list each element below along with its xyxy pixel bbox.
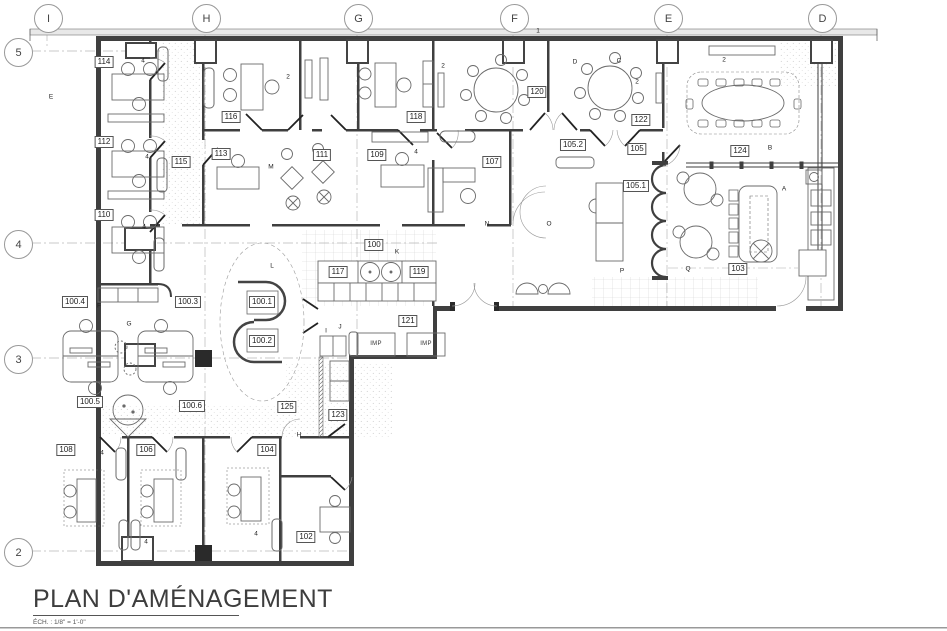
- grid-column-I: I: [34, 4, 63, 33]
- room-tag-107: 107: [482, 156, 501, 168]
- room-tag-100: 100: [364, 239, 383, 251]
- keynote-1: 1: [536, 28, 540, 35]
- grid-column-E: E: [654, 4, 683, 33]
- room-tag-105-2: 105.2: [560, 139, 586, 151]
- grid-row-5: 5: [4, 38, 33, 67]
- keynote-p: P: [620, 268, 624, 275]
- scalloped-wall: [652, 161, 668, 280]
- room-tag-112: 112: [95, 136, 114, 148]
- room-tag-100-2: 100.2: [249, 335, 275, 347]
- printer-label: IMP: [420, 341, 432, 347]
- room-tag-100-4: 100.4: [62, 296, 88, 308]
- room-tag-104: 104: [257, 444, 276, 456]
- room-tag-114: 114: [95, 56, 114, 68]
- grid-column-G: G: [344, 4, 373, 33]
- printer-label: IMP: [370, 341, 382, 347]
- keynote-l: L: [270, 263, 274, 270]
- keynote-j: J: [338, 324, 341, 331]
- keynote-2: 2: [635, 79, 639, 86]
- room-tag-100-6: 100.6: [179, 400, 205, 412]
- room-tag-109: 109: [367, 149, 386, 161]
- title-underline: [33, 615, 239, 616]
- room-tag-125: 125: [277, 401, 296, 413]
- room-tag-119: 119: [410, 266, 429, 278]
- floor-textures: [100, 40, 836, 437]
- keynote-c: C: [617, 58, 622, 65]
- keynote-n: N: [485, 221, 490, 228]
- room-tag-100-5: 100.5: [77, 396, 103, 408]
- room-tag-116: 116: [222, 111, 241, 123]
- keynote-4: 4: [100, 450, 104, 457]
- keynote-f: F: [97, 303, 101, 310]
- keynote-i: I: [325, 328, 327, 335]
- grid-column-H: H: [192, 4, 221, 33]
- grid-row-3: 3: [4, 345, 33, 374]
- drawing-title: PLAN D'AMÉNAGEMENT: [33, 586, 333, 612]
- room-tag-105: 105: [627, 143, 646, 155]
- floor-plan-sheet: I H G F E D 5 4 3 2 114 112 110 115 116 …: [0, 0, 947, 631]
- grid-column-D: D: [808, 4, 837, 33]
- title-block: PLAN D'AMÉNAGEMENT ÉCH. : 1/8" = 1'-0": [33, 586, 333, 626]
- keynote-e: E: [49, 94, 53, 101]
- keynote-2: 2: [722, 57, 726, 64]
- keynote-4: 4: [142, 224, 146, 231]
- floor-plan-drawing: [0, 0, 947, 631]
- room-tag-103: 103: [728, 263, 747, 275]
- room-tag-108: 108: [56, 444, 75, 456]
- room-tag-122: 122: [631, 114, 650, 126]
- room-tag-100-3: 100.3: [175, 296, 201, 308]
- room-tag-110: 110: [95, 209, 114, 221]
- room-tag-120: 120: [527, 86, 546, 98]
- room-tag-124: 124: [730, 145, 749, 157]
- keynote-a: A: [782, 186, 786, 193]
- keynote-d: D: [573, 59, 578, 66]
- scale-note: ÉCH. : 1/8" = 1'-0": [33, 619, 333, 626]
- keynote-4: 4: [254, 531, 258, 538]
- keynote-q: Q: [685, 266, 690, 273]
- grid-column-F: F: [500, 4, 529, 33]
- room-tag-113: 113: [212, 148, 231, 160]
- keynote-k: K: [395, 249, 399, 256]
- keynote-4: 4: [145, 154, 149, 161]
- room-tag-117: 117: [329, 266, 348, 278]
- grid-row-2: 2: [4, 538, 33, 567]
- keynote-4: 4: [141, 58, 145, 65]
- sheet-edge-line: [0, 627, 947, 628]
- keynote-g: G: [126, 321, 131, 328]
- room-tag-121: 121: [398, 315, 417, 327]
- keynote-b: B: [768, 145, 772, 152]
- keynote-o: O: [546, 221, 551, 228]
- room-tag-106: 106: [136, 444, 155, 456]
- grid-row-4: 4: [4, 230, 33, 259]
- keynote-2: 2: [286, 74, 290, 81]
- keynote-2: 2: [441, 63, 445, 70]
- keynote-h: H: [297, 432, 302, 439]
- keynote-4: 4: [144, 539, 148, 546]
- room-tag-105-1: 105.1: [623, 180, 649, 192]
- room-tag-123: 123: [328, 409, 347, 421]
- room-tag-102: 102: [296, 531, 315, 543]
- room-tag-118: 118: [407, 111, 426, 123]
- keynote-4: 4: [414, 149, 418, 156]
- room-tag-115: 115: [172, 156, 191, 168]
- room-tag-111: 111: [313, 149, 331, 161]
- keynote-m: M: [268, 164, 273, 171]
- room-tag-100-1: 100.1: [249, 296, 275, 308]
